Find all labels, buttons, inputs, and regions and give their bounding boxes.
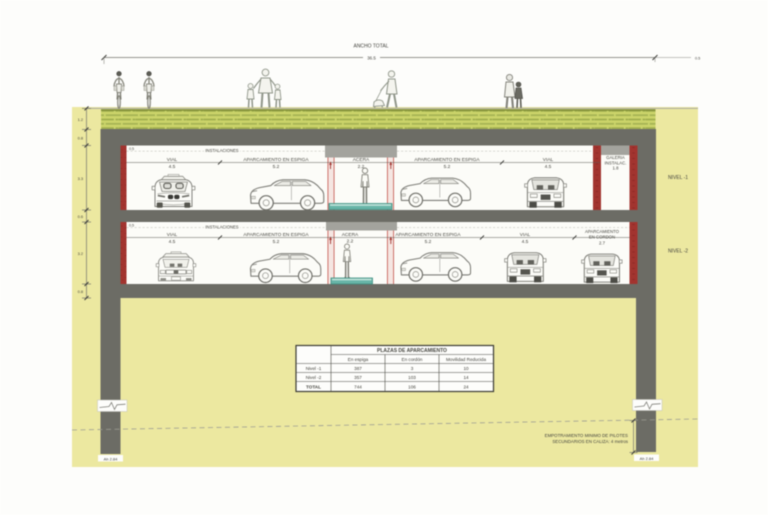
- svg-text:VIAL: VIAL: [167, 232, 178, 238]
- svg-text:INSTALACIONES: INSTALACIONES: [205, 224, 238, 229]
- svg-text:744: 744: [354, 385, 362, 390]
- svg-text:Movilidad Reducida: Movilidad Reducida: [446, 357, 487, 362]
- svg-text:1.2: 1.2: [78, 117, 83, 122]
- svg-text:10: 10: [463, 366, 469, 371]
- svg-text:106: 106: [408, 385, 416, 390]
- svg-text:APARCAMIENTO EN ESPIGA: APARCAMIENTO EN ESPIGA: [414, 157, 480, 163]
- svg-text:2.2: 2.2: [347, 239, 354, 245]
- svg-text:24: 24: [463, 385, 469, 390]
- svg-text:3: 3: [411, 366, 414, 371]
- svg-text:5.2: 5.2: [444, 164, 451, 170]
- svg-text:Ah 2.84: Ah 2.84: [640, 456, 655, 461]
- svg-text:INSTALAC.: INSTALAC.: [605, 160, 627, 165]
- svg-text:VIAL: VIAL: [543, 157, 554, 163]
- svg-text:ACERA: ACERA: [353, 157, 370, 163]
- svg-text:EMPOTRAMIENTO MINIMO DE PIL: EMPOTRAMIENTO MINIMO DE PILOTES: [545, 433, 628, 438]
- svg-text:APARCAMIENTO EN ESPIGA: APARCAMIENTO EN ESPIGA: [243, 157, 309, 163]
- svg-text:387: 387: [354, 366, 362, 371]
- svg-text:VIAL: VIAL: [167, 157, 178, 163]
- svg-text:APARCAMIENTO: APARCAMIENTO: [585, 229, 620, 234]
- svg-text:NIVEL -1: NIVEL -1: [668, 175, 688, 181]
- svg-text:Ah 2.84: Ah 2.84: [104, 457, 119, 462]
- svg-text:0.6: 0.6: [78, 214, 83, 219]
- svg-text:NIVEL -2: NIVEL -2: [668, 249, 688, 255]
- svg-text:APARCAMIENTO EN ESPIGA: APARCAMIENTO EN ESPIGA: [395, 232, 461, 238]
- svg-text:4.5: 4.5: [169, 164, 176, 170]
- svg-text:1.8: 1.8: [613, 166, 620, 171]
- svg-text:APARCAMIENTO EN ESPIGA: APARCAMIENTO EN ESPIGA: [243, 232, 309, 238]
- svg-text:INSTALACIONES: INSTALACIONES: [205, 148, 238, 153]
- svg-text:5.2: 5.2: [273, 239, 280, 245]
- svg-text:Nivel -2: Nivel -2: [306, 375, 322, 380]
- svg-text:EN CORDON: EN CORDON: [589, 234, 615, 239]
- svg-text:0.8: 0.8: [78, 289, 83, 294]
- svg-text:ACERA: ACERA: [342, 232, 359, 238]
- svg-text:0.5: 0.5: [129, 224, 134, 228]
- svg-text:SECUNDARIOS EN CALIZA: 4 m: SECUNDARIOS EN CALIZA: 4 metros: [552, 439, 628, 444]
- svg-text:ANCHO TOTAL: ANCHO TOTAL: [353, 44, 388, 50]
- svg-text:En espiga: En espiga: [348, 357, 369, 362]
- svg-text:3.2: 3.2: [78, 251, 83, 256]
- svg-text:5.2: 5.2: [273, 164, 280, 170]
- svg-text:103: 103: [408, 375, 416, 380]
- svg-text:0.5: 0.5: [129, 147, 134, 151]
- svg-text:En cordón: En cordón: [402, 357, 423, 362]
- svg-text:36.5: 36.5: [367, 56, 376, 61]
- svg-text:TOTAL: TOTAL: [306, 385, 321, 390]
- svg-text:VIAL: VIAL: [520, 232, 531, 238]
- svg-text:14: 14: [463, 375, 469, 380]
- svg-text:GALERIA: GALERIA: [606, 155, 625, 160]
- svg-text:3.3: 3.3: [78, 176, 83, 181]
- svg-text:Nivel -1: Nivel -1: [306, 366, 322, 371]
- svg-text:4.5: 4.5: [522, 239, 529, 245]
- svg-text:357: 357: [354, 375, 362, 380]
- svg-text:PLAZAS DE APARCAMIENTO: PLAZAS DE APARCAMIENTO: [377, 348, 447, 354]
- svg-text:2.7: 2.7: [599, 241, 606, 246]
- svg-text:0.5: 0.5: [695, 56, 700, 60]
- svg-text:4.5: 4.5: [169, 239, 176, 245]
- svg-text:4.5: 4.5: [545, 164, 552, 170]
- svg-text:5.2: 5.2: [425, 239, 432, 245]
- svg-text:0.8: 0.8: [78, 136, 83, 141]
